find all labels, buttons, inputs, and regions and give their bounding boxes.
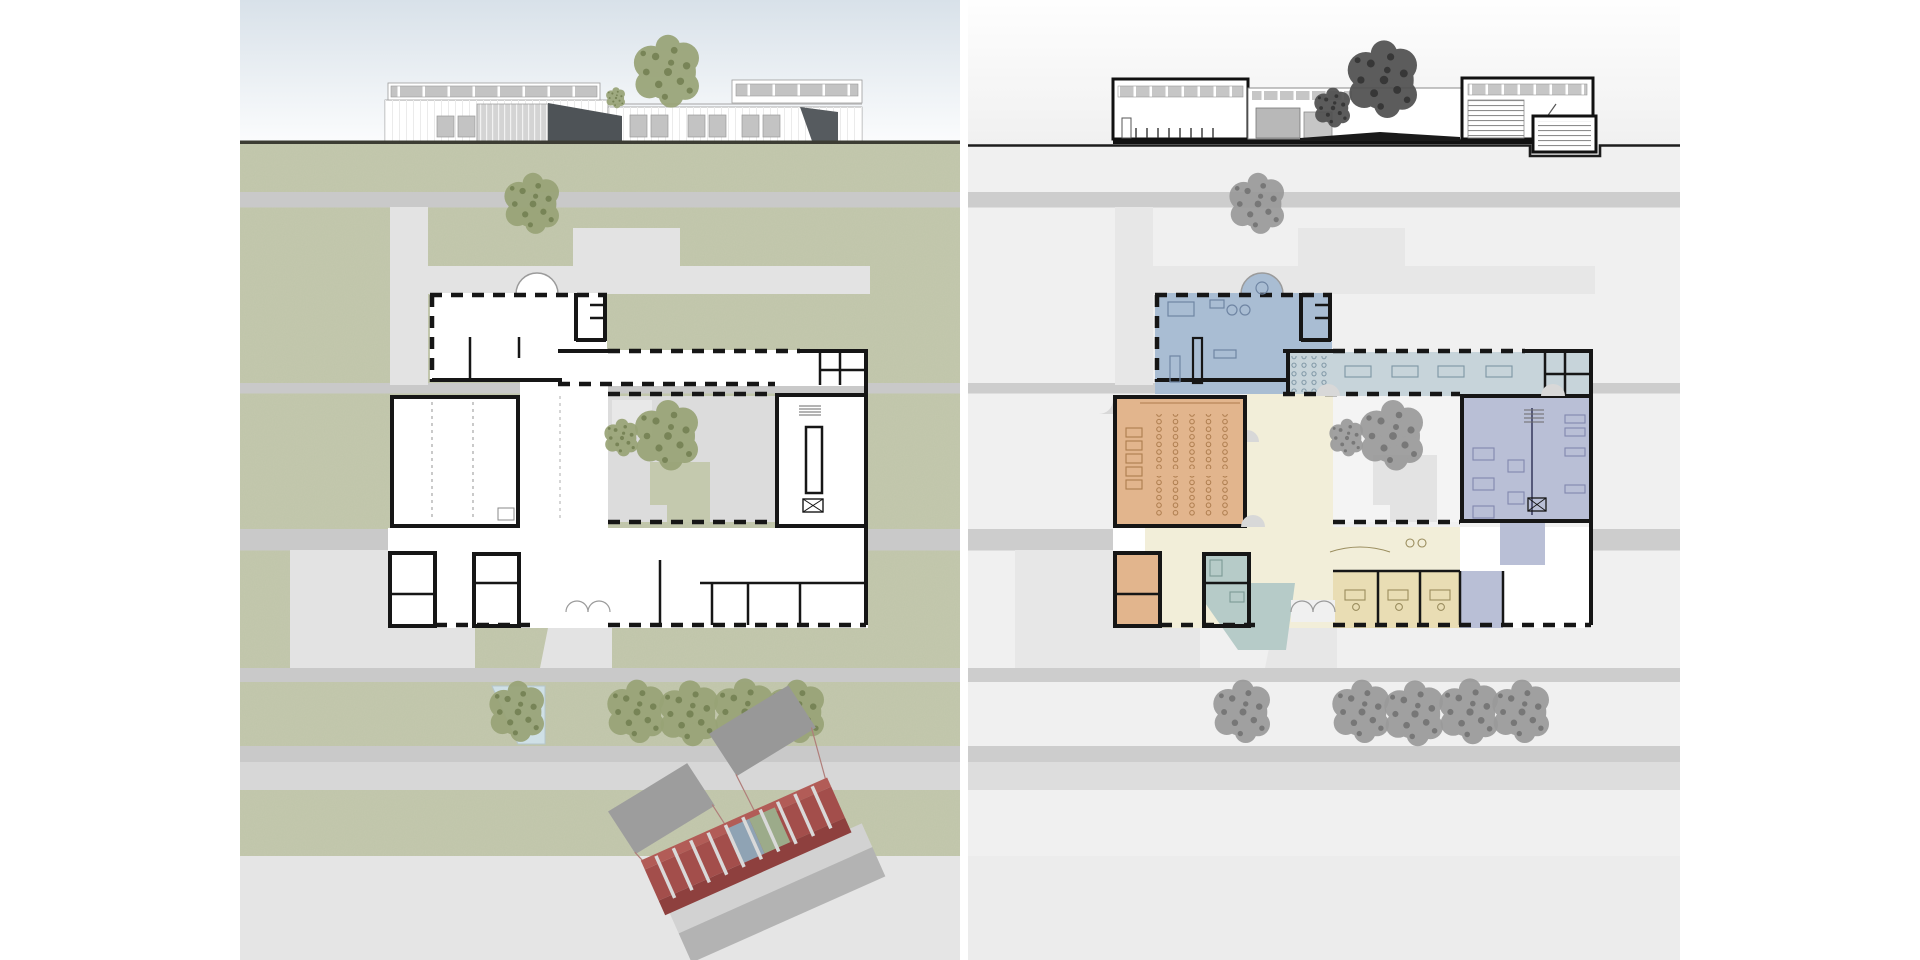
room-library-annex	[1460, 571, 1503, 628]
drawing-canvas	[0, 0, 1920, 960]
room-foyer-upper	[1247, 394, 1333, 527]
promenade-band-right	[968, 762, 1680, 790]
promenade-band	[240, 762, 960, 790]
clerestory-b	[736, 84, 858, 96]
left-panel-site-plan	[240, 0, 960, 960]
room-library-vestibule	[1500, 522, 1545, 565]
clerestory-a	[391, 86, 597, 97]
entrance-glazing	[477, 104, 548, 141]
section-left-hall	[1113, 79, 1248, 139]
right-panel-program-plan	[968, 0, 1680, 960]
south-field-right	[968, 856, 1680, 960]
elevation-ground-line	[240, 141, 960, 145]
room-foyer-strip	[1145, 527, 1460, 571]
room-wc-block	[1288, 293, 1332, 352]
section-basement	[1533, 116, 1596, 152]
presentation-board	[0, 0, 1920, 960]
room-annex	[1114, 552, 1160, 628]
